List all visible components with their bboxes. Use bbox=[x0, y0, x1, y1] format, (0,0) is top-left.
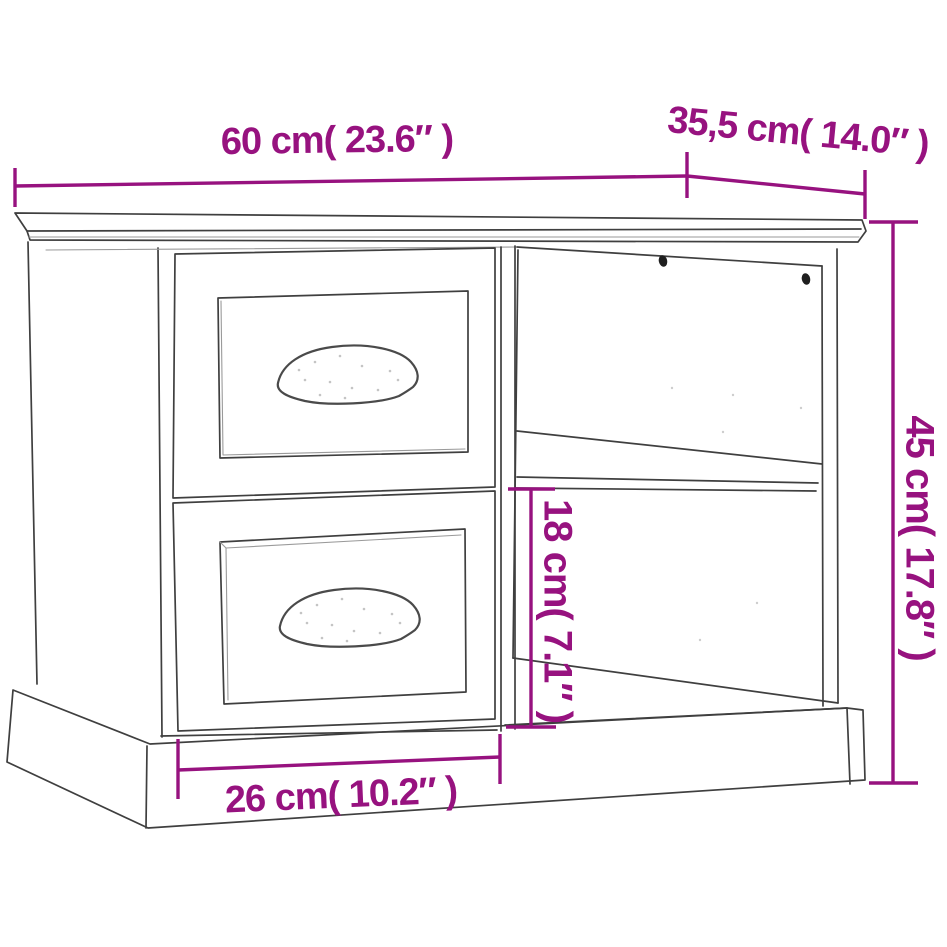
screw-icon bbox=[801, 272, 812, 285]
drawer-stack bbox=[173, 248, 495, 731]
left-stile-edge bbox=[158, 248, 162, 737]
top-panel-outline bbox=[15, 213, 866, 242]
plinth-left-cap-edge bbox=[146, 746, 147, 828]
shelf-opening-height-label: 18 cm( 7.1″ ) bbox=[535, 499, 580, 723]
width-line bbox=[15, 176, 687, 186]
right-side-outer-edge bbox=[837, 249, 838, 703]
left-side-outer-edge bbox=[28, 242, 37, 684]
shelf-back-edge bbox=[517, 431, 822, 464]
right-stile-inner-edge bbox=[822, 266, 823, 706]
width-dimension-label: 60 cm( 23.6″ ) bbox=[221, 118, 454, 164]
height-dimension-label: 45 cm( 17.8″ ) bbox=[897, 415, 942, 660]
compartment-ceiling-edge bbox=[517, 247, 822, 266]
shelf-front-bottom-edge bbox=[516, 488, 816, 491]
nightstand-drawing bbox=[7, 213, 866, 828]
shelf-pin-screws bbox=[658, 254, 812, 285]
dimension-diagram-stage: 60 cm( 23.6″ ) 35,5 cm( 14.0″ ) 45 cm( 1… bbox=[0, 0, 947, 947]
shelf-front-top-edge bbox=[517, 477, 818, 483]
depth-line bbox=[687, 176, 865, 194]
depth-dimension-line bbox=[687, 152, 865, 219]
top-panel bbox=[15, 213, 866, 242]
surface-speckles bbox=[671, 387, 802, 641]
width-dimension-line bbox=[15, 168, 687, 207]
